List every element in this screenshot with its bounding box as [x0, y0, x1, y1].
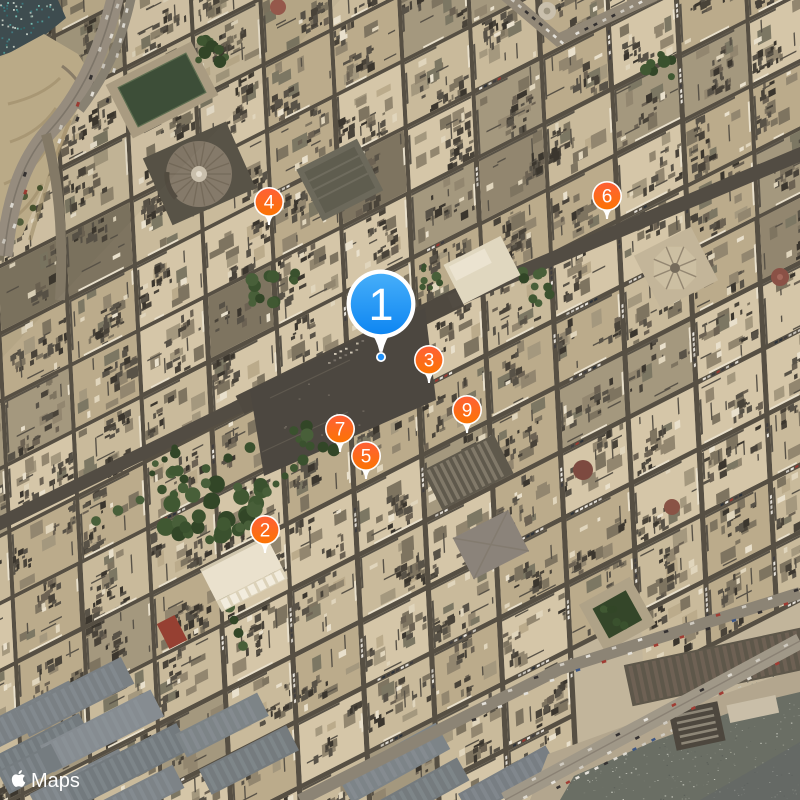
svg-text:7: 7: [335, 420, 346, 441]
svg-text:5: 5: [361, 447, 372, 468]
svg-text:1: 1: [368, 279, 393, 330]
svg-text:3: 3: [424, 351, 435, 372]
svg-text:6: 6: [602, 187, 613, 208]
svg-text:9: 9: [462, 401, 473, 422]
svg-text:4: 4: [264, 193, 275, 214]
svg-text:2: 2: [260, 521, 271, 542]
svg-text:Maps: Maps: [31, 770, 80, 792]
